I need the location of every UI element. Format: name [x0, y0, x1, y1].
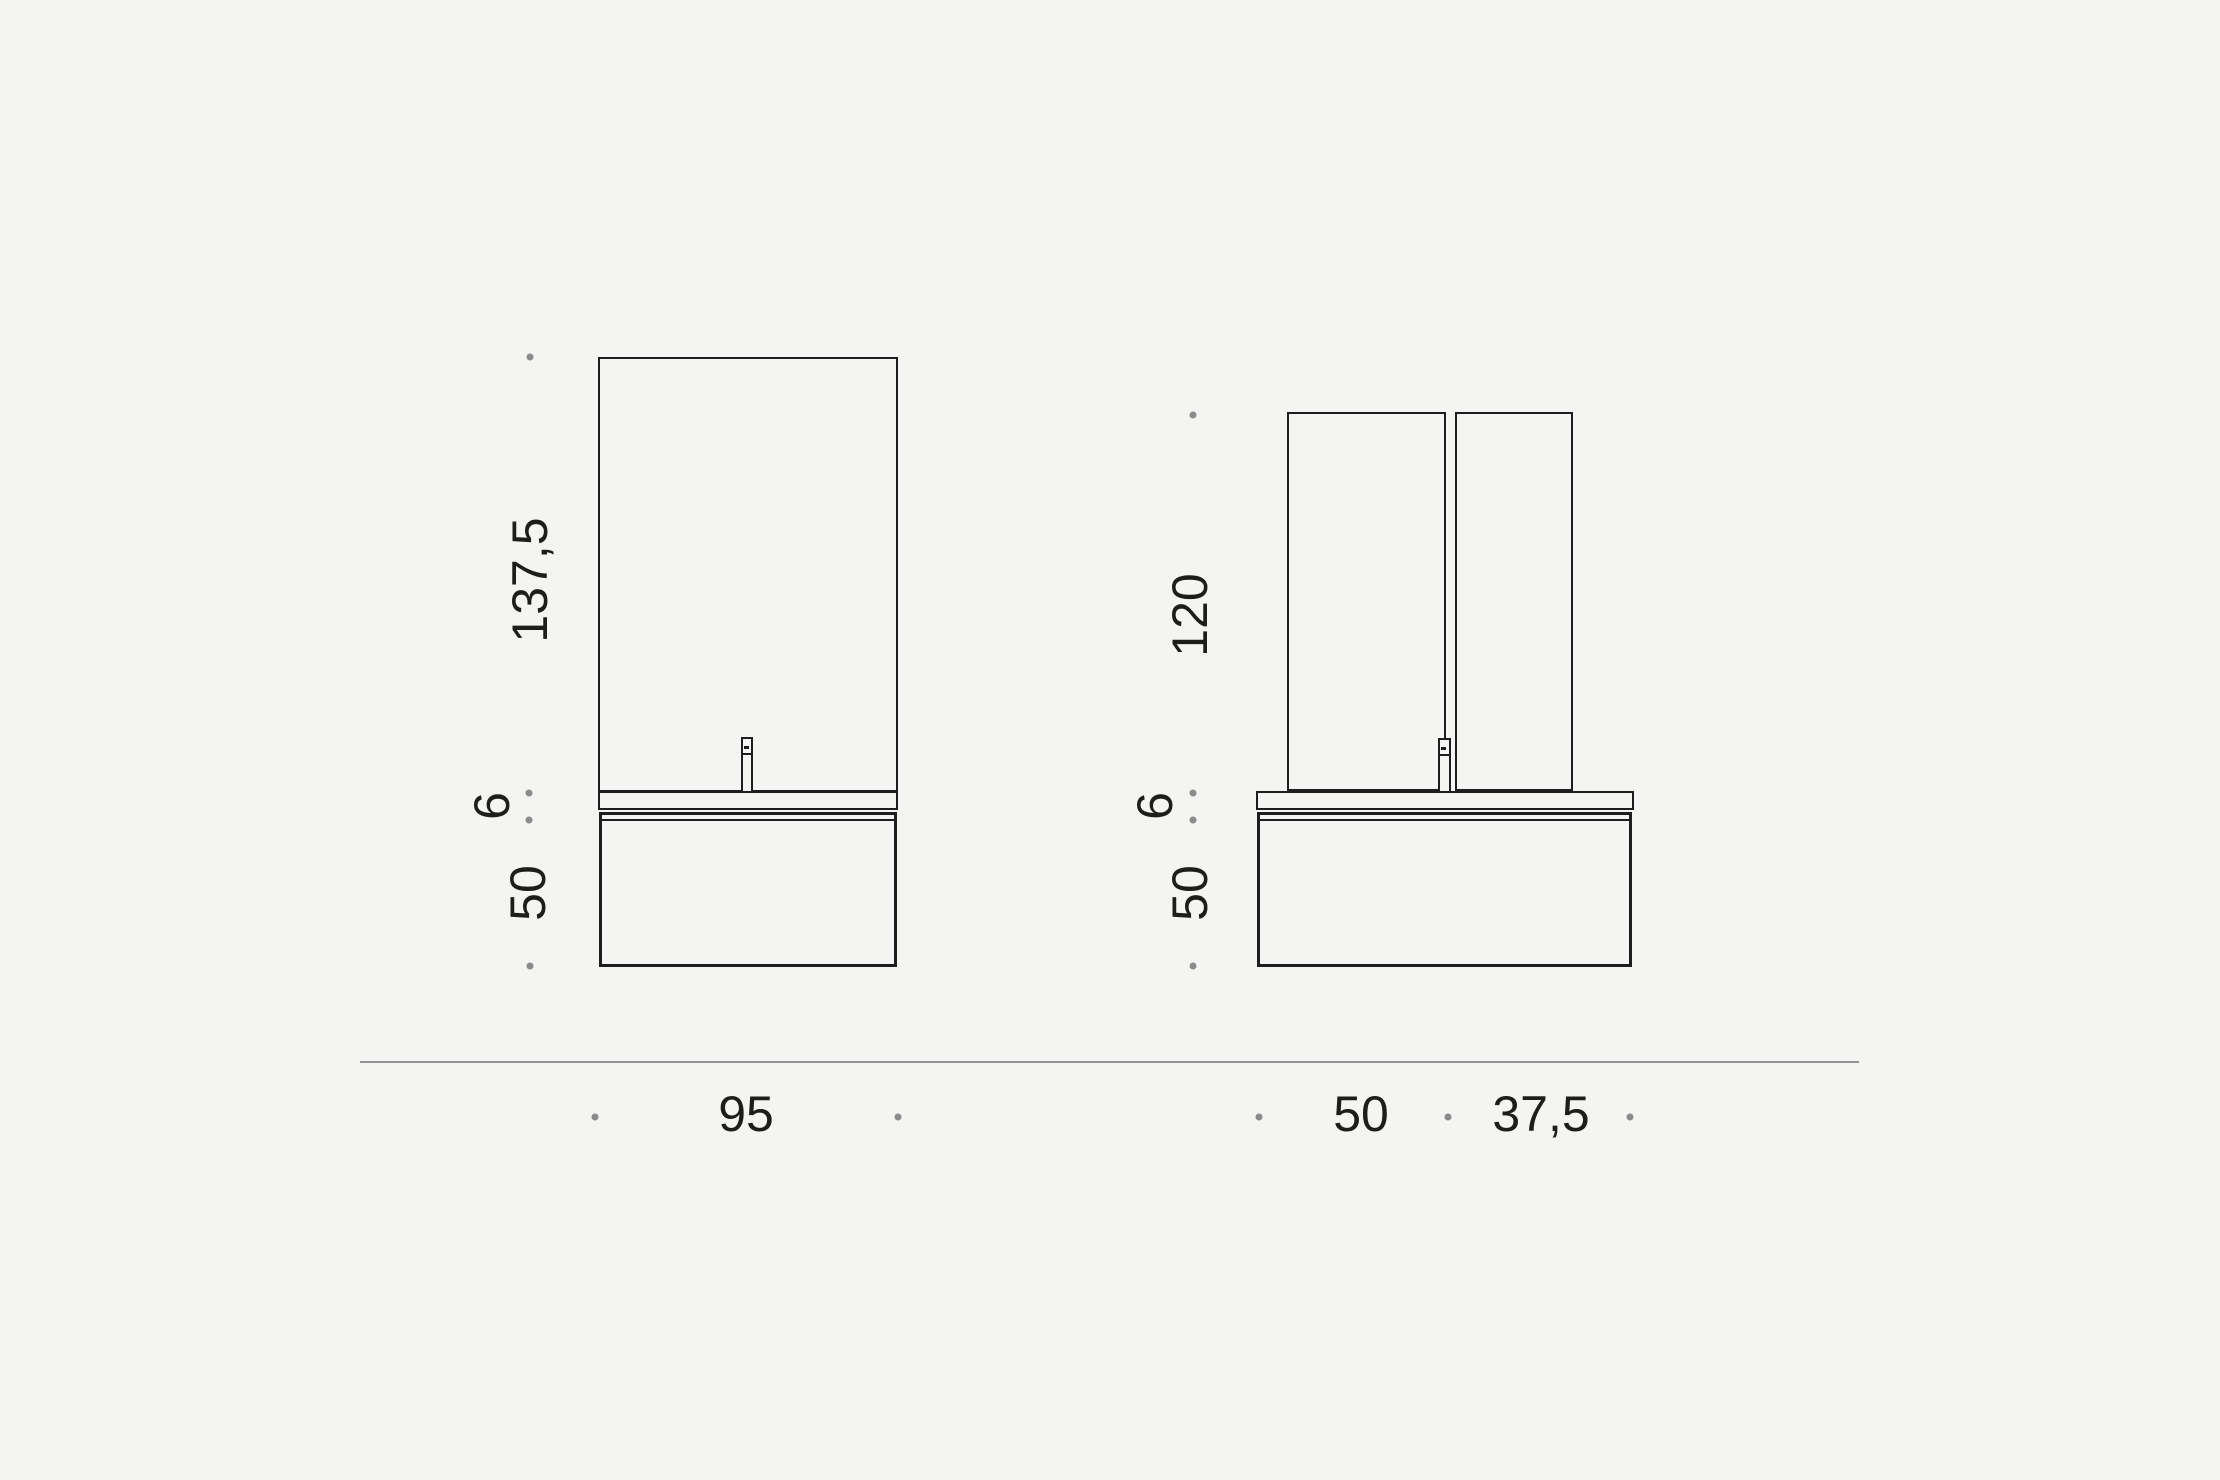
dimension-dot [526, 817, 533, 824]
dimension-dot [1190, 817, 1197, 824]
side-base-cabinet [1257, 812, 1632, 967]
side-panel-right-outline [1455, 412, 1573, 791]
front-mirror-outline [598, 357, 898, 792]
dim-label-side-panel-height: 120 [1165, 573, 1215, 656]
front-countertop [598, 791, 898, 810]
faucet-aerator-mark [1441, 747, 1446, 750]
dimension-dot [527, 963, 534, 970]
dim-label-side-width-secondary: 37,5 [1492, 1089, 1589, 1139]
dimension-dot [526, 790, 533, 797]
dim-label-side-cabinet-height: 50 [1165, 865, 1215, 921]
front-base-cabinet [599, 812, 897, 967]
dim-label-side-width-main: 50 [1333, 1089, 1389, 1139]
dimension-dot [895, 1114, 902, 1121]
side-faucet [1438, 738, 1451, 793]
dimension-dot [1627, 1114, 1634, 1121]
side-countertop [1256, 791, 1634, 810]
faucet-aerator-mark [744, 746, 749, 749]
dimension-dot [527, 354, 534, 361]
dim-label-front-cabinet-height: 50 [503, 865, 553, 921]
front-faucet [741, 737, 753, 793]
baseline-separator [360, 1061, 1859, 1063]
side-panel-left-outline [1287, 412, 1446, 791]
faucet-spout-line [743, 753, 751, 755]
dim-label-front-width: 95 [718, 1089, 774, 1139]
faucet-spout-line [1440, 754, 1449, 756]
side-drawer-groove-line [1260, 819, 1629, 821]
dim-label-front-mirror-height: 137,5 [505, 517, 555, 642]
front-drawer-groove-line [602, 819, 894, 821]
dim-label-side-countertop-thickness: 6 [1130, 792, 1180, 820]
dimension-dot [1190, 963, 1197, 970]
dimension-dot [1256, 1114, 1263, 1121]
dimension-dot [1445, 1114, 1452, 1121]
dimension-dot [592, 1114, 599, 1121]
dim-label-front-countertop-thickness: 6 [467, 792, 517, 820]
dimension-drawing-canvas: 137,5 6 50 95 120 6 50 50 37,5 [0, 0, 2220, 1480]
dimension-dot [1190, 790, 1197, 797]
dimension-dot [1190, 412, 1197, 419]
